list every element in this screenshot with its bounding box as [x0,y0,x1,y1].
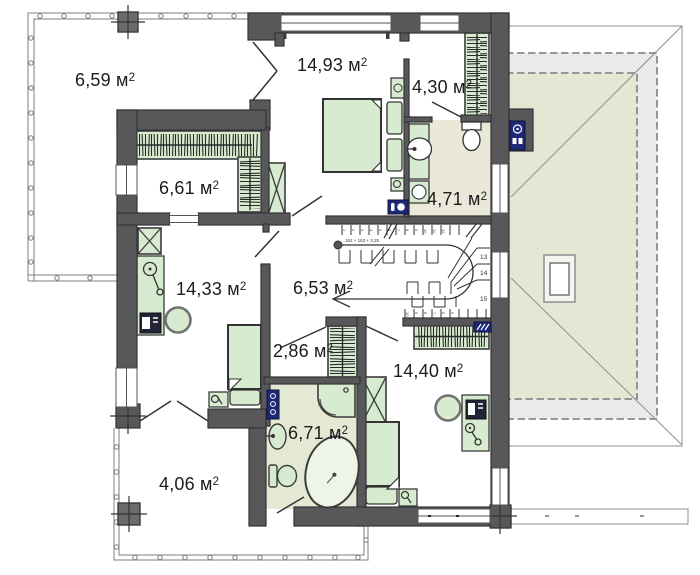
svg-text:4,06 м2: 4,06 м2 [159,474,219,494]
svg-text:14,40 м2: 14,40 м2 [393,361,463,381]
svg-text:6,71 м2: 6,71 м2 [288,423,348,443]
svg-text:6,61 м2: 6,61 м2 [159,178,219,198]
svg-text:14,93 м2: 14,93 м2 [297,55,367,75]
svg-text:12: 12 [441,229,446,234]
svg-text:14,33 м2: 14,33 м2 [176,279,246,299]
svg-text:10: 10 [405,312,410,317]
svg-text:162 + 163 + 3,25: 162 + 163 + 3,25 [345,238,380,243]
svg-text:10: 10 [423,229,428,234]
svg-text:6,59 м2: 6,59 м2 [75,70,135,90]
svg-text:4,30 м2: 4,30 м2 [412,77,472,97]
svg-text:13: 13 [480,254,488,261]
svg-text:4,71 м2: 4,71 м2 [427,189,487,209]
svg-text:2,86 м2: 2,86 м2 [273,341,333,361]
svg-text:15: 15 [480,296,488,303]
svg-text:6,53 м2: 6,53 м2 [293,278,353,298]
svg-text:14: 14 [480,270,488,277]
